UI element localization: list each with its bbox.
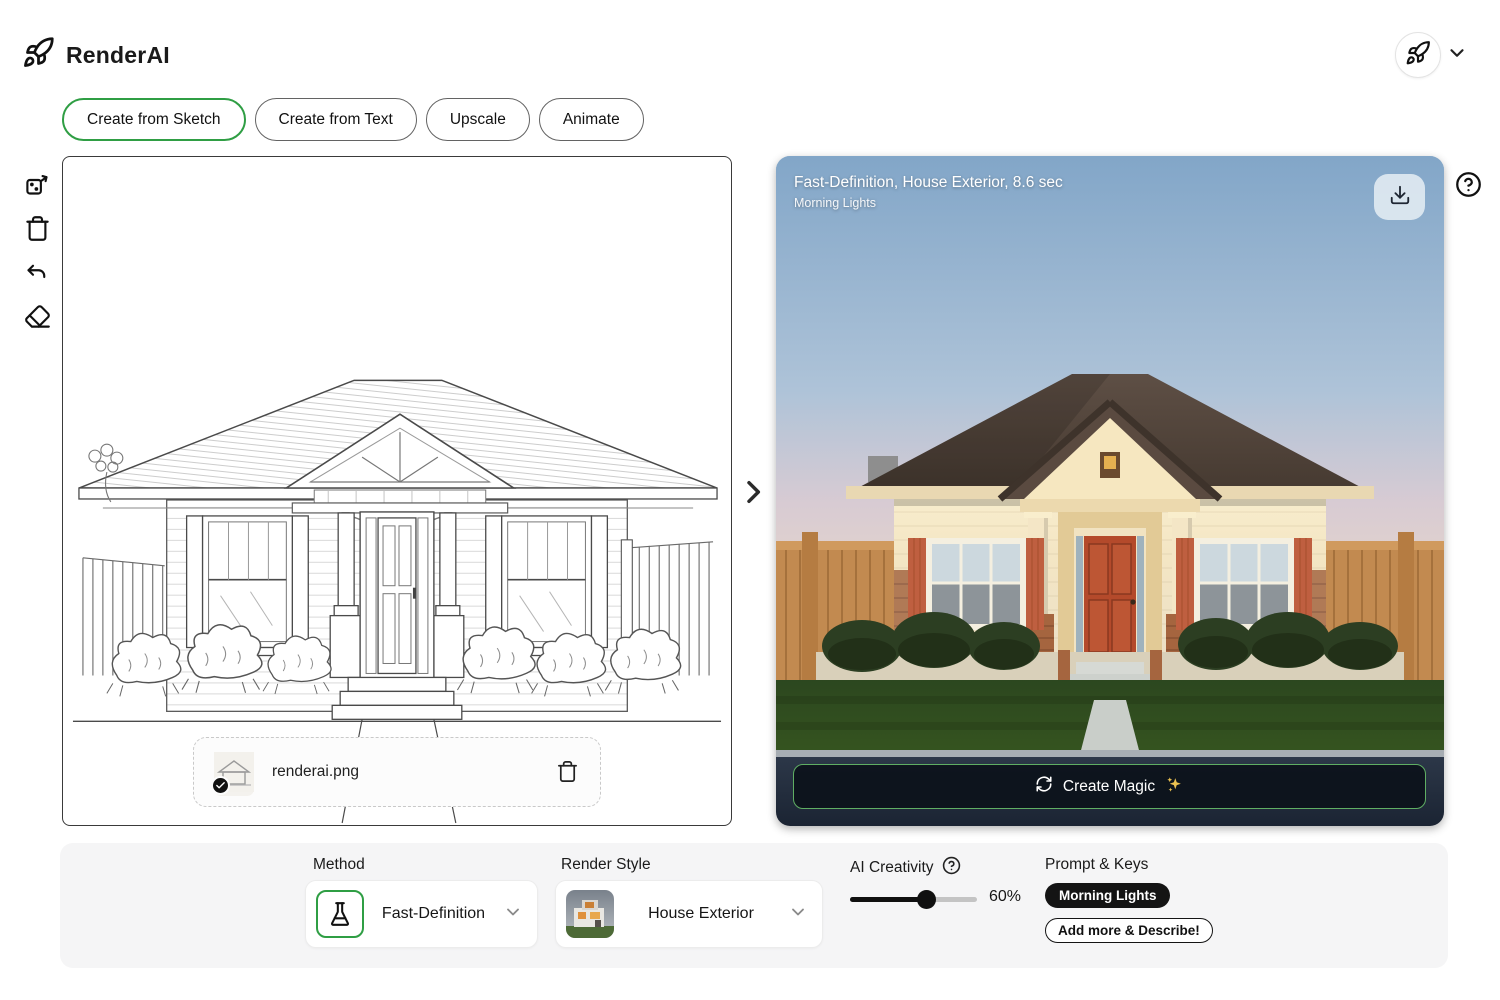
chevron-down-icon <box>503 902 523 927</box>
uploaded-file-chip[interactable]: renderai.png <box>193 737 601 807</box>
creativity-slider[interactable] <box>850 889 977 909</box>
result-title: Fast-Definition, House Exterior, 8.6 sec <box>794 174 1063 192</box>
method-value: Fast-Definition <box>364 905 503 923</box>
download-button[interactable] <box>1374 174 1425 220</box>
modern-house-thumbnail <box>566 890 614 938</box>
house-sketch-drawing <box>63 157 731 825</box>
tab-create-from-sketch[interactable]: Create from Sketch <box>62 98 246 141</box>
file-name: renderai.png <box>272 763 540 781</box>
question-icon[interactable] <box>1455 171 1482 198</box>
eraser-icon[interactable] <box>24 303 51 330</box>
add-more-describe-button[interactable]: Add more & Describe! <box>1045 918 1213 943</box>
canvas-toolbar <box>24 171 51 330</box>
account-menu-button[interactable] <box>1395 32 1468 78</box>
rendered-house-image <box>776 156 1444 826</box>
rocket-icon <box>22 36 55 74</box>
ai-creativity-label: AI Creativity <box>850 859 934 877</box>
render-style-label: Render Style <box>561 856 651 874</box>
file-thumbnail <box>214 752 256 792</box>
prompt-keys-label: Prompt & Keys <box>1045 856 1148 874</box>
chevron-down-icon <box>788 902 808 927</box>
question-icon[interactable] <box>942 856 961 880</box>
method-label: Method <box>313 856 365 874</box>
randomize-icon[interactable] <box>24 171 51 198</box>
render-style-dropdown[interactable]: House Exterior <box>555 880 823 948</box>
tab-animate[interactable]: Animate <box>539 98 644 141</box>
trash-icon[interactable] <box>24 215 51 242</box>
tab-upscale[interactable]: Upscale <box>426 98 530 141</box>
result-subtitle: Morning Lights <box>794 196 1063 210</box>
settings-bar: Method Fast-Definition Render Style <box>60 843 1448 968</box>
prompt-key-morning-lights[interactable]: Morning Lights <box>1045 883 1170 908</box>
creativity-slider-fill <box>850 897 926 902</box>
chevron-down-icon <box>1446 42 1468 69</box>
sketch-canvas[interactable]: renderai.png <box>62 156 732 826</box>
method-dropdown[interactable]: Fast-Definition <box>305 880 538 948</box>
delete-file-button[interactable] <box>556 760 580 784</box>
result-header: Fast-Definition, House Exterior, 8.6 sec… <box>794 174 1063 210</box>
renderai-app: RenderAI Create from Sketch Create from … <box>0 0 1500 1000</box>
creativity-label-row: AI Creativity <box>850 856 961 880</box>
creativity-value: 60% <box>989 888 1021 906</box>
avatar <box>1395 32 1441 78</box>
create-magic-label: Create Magic <box>1063 778 1155 796</box>
render-result-panel: Fast-Definition, House Exterior, 8.6 sec… <box>776 156 1444 826</box>
rocket-icon <box>1405 40 1431 71</box>
tab-create-from-text[interactable]: Create from Text <box>255 98 417 141</box>
undo-icon[interactable] <box>24 259 51 286</box>
app-logo: RenderAI <box>22 36 170 74</box>
download-icon <box>1389 184 1411 211</box>
refresh-icon <box>1035 775 1053 798</box>
creativity-slider-thumb[interactable] <box>917 890 936 909</box>
check-icon <box>211 776 230 795</box>
mode-tabs: Create from Sketch Create from Text Upsc… <box>62 98 644 141</box>
sparkles-icon <box>1165 775 1184 799</box>
flask-icon <box>316 890 364 938</box>
app-title: RenderAI <box>66 42 170 69</box>
chevron-right-icon[interactable] <box>737 475 769 509</box>
create-magic-button[interactable]: Create Magic <box>793 764 1426 809</box>
render-style-value: House Exterior <box>614 905 788 923</box>
